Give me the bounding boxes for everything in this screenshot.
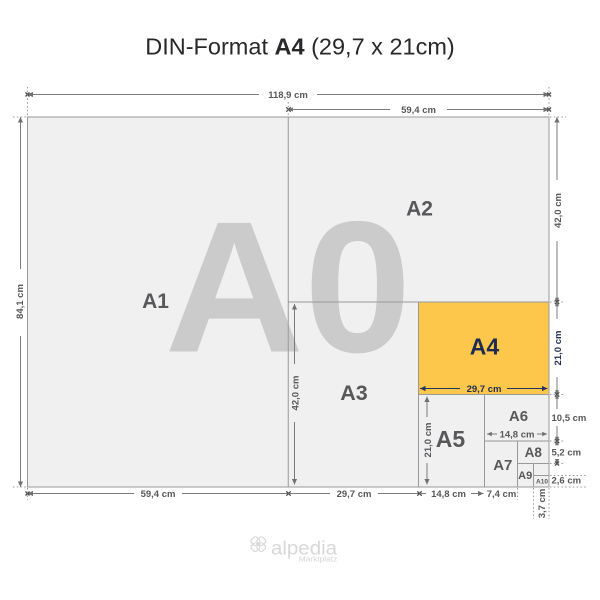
svg-text:59,4 cm: 59,4 cm [141,489,176,500]
svg-text:42,0 cm: 42,0 cm [290,376,301,411]
svg-text:Marktplatz: Marktplatz [299,555,338,564]
svg-text:3,7 cm: 3,7 cm [537,489,548,519]
svg-text:84,1 cm: 84,1 cm [15,284,26,319]
svg-text:5,2 cm: 5,2 cm [552,447,582,458]
svg-text:59,4 cm: 59,4 cm [401,105,436,116]
svg-text:A7: A7 [493,457,512,474]
svg-text:DIN-Format A4 (29,7 x 21cm): DIN-Format A4 (29,7 x 21cm) [145,33,455,59]
svg-text:2,6 cm: 2,6 cm [552,476,582,487]
svg-text:A10: A10 [536,479,548,486]
svg-text:21,0 cm: 21,0 cm [423,423,434,458]
svg-text:A8: A8 [525,445,543,460]
svg-text:14,8 cm: 14,8 cm [500,429,535,440]
svg-text:29,7 cm: 29,7 cm [467,384,502,395]
svg-text:42,0 cm: 42,0 cm [553,193,564,228]
svg-text:A3: A3 [340,381,368,405]
svg-text:29,7 cm: 29,7 cm [337,489,372,500]
svg-text:7,4 cm: 7,4 cm [487,489,517,500]
svg-text:A5: A5 [436,426,466,452]
svg-text:A9: A9 [518,470,532,482]
svg-text:118,9 cm: 118,9 cm [268,90,308,101]
svg-text:10,5 cm: 10,5 cm [552,413,587,424]
svg-text:A2: A2 [406,197,433,220]
svg-text:A4: A4 [470,334,500,360]
svg-text:A6: A6 [509,408,528,425]
svg-text:21,0 cm: 21,0 cm [553,331,564,366]
svg-text:A1: A1 [142,290,169,313]
svg-text:14,8 cm: 14,8 cm [431,489,466,500]
